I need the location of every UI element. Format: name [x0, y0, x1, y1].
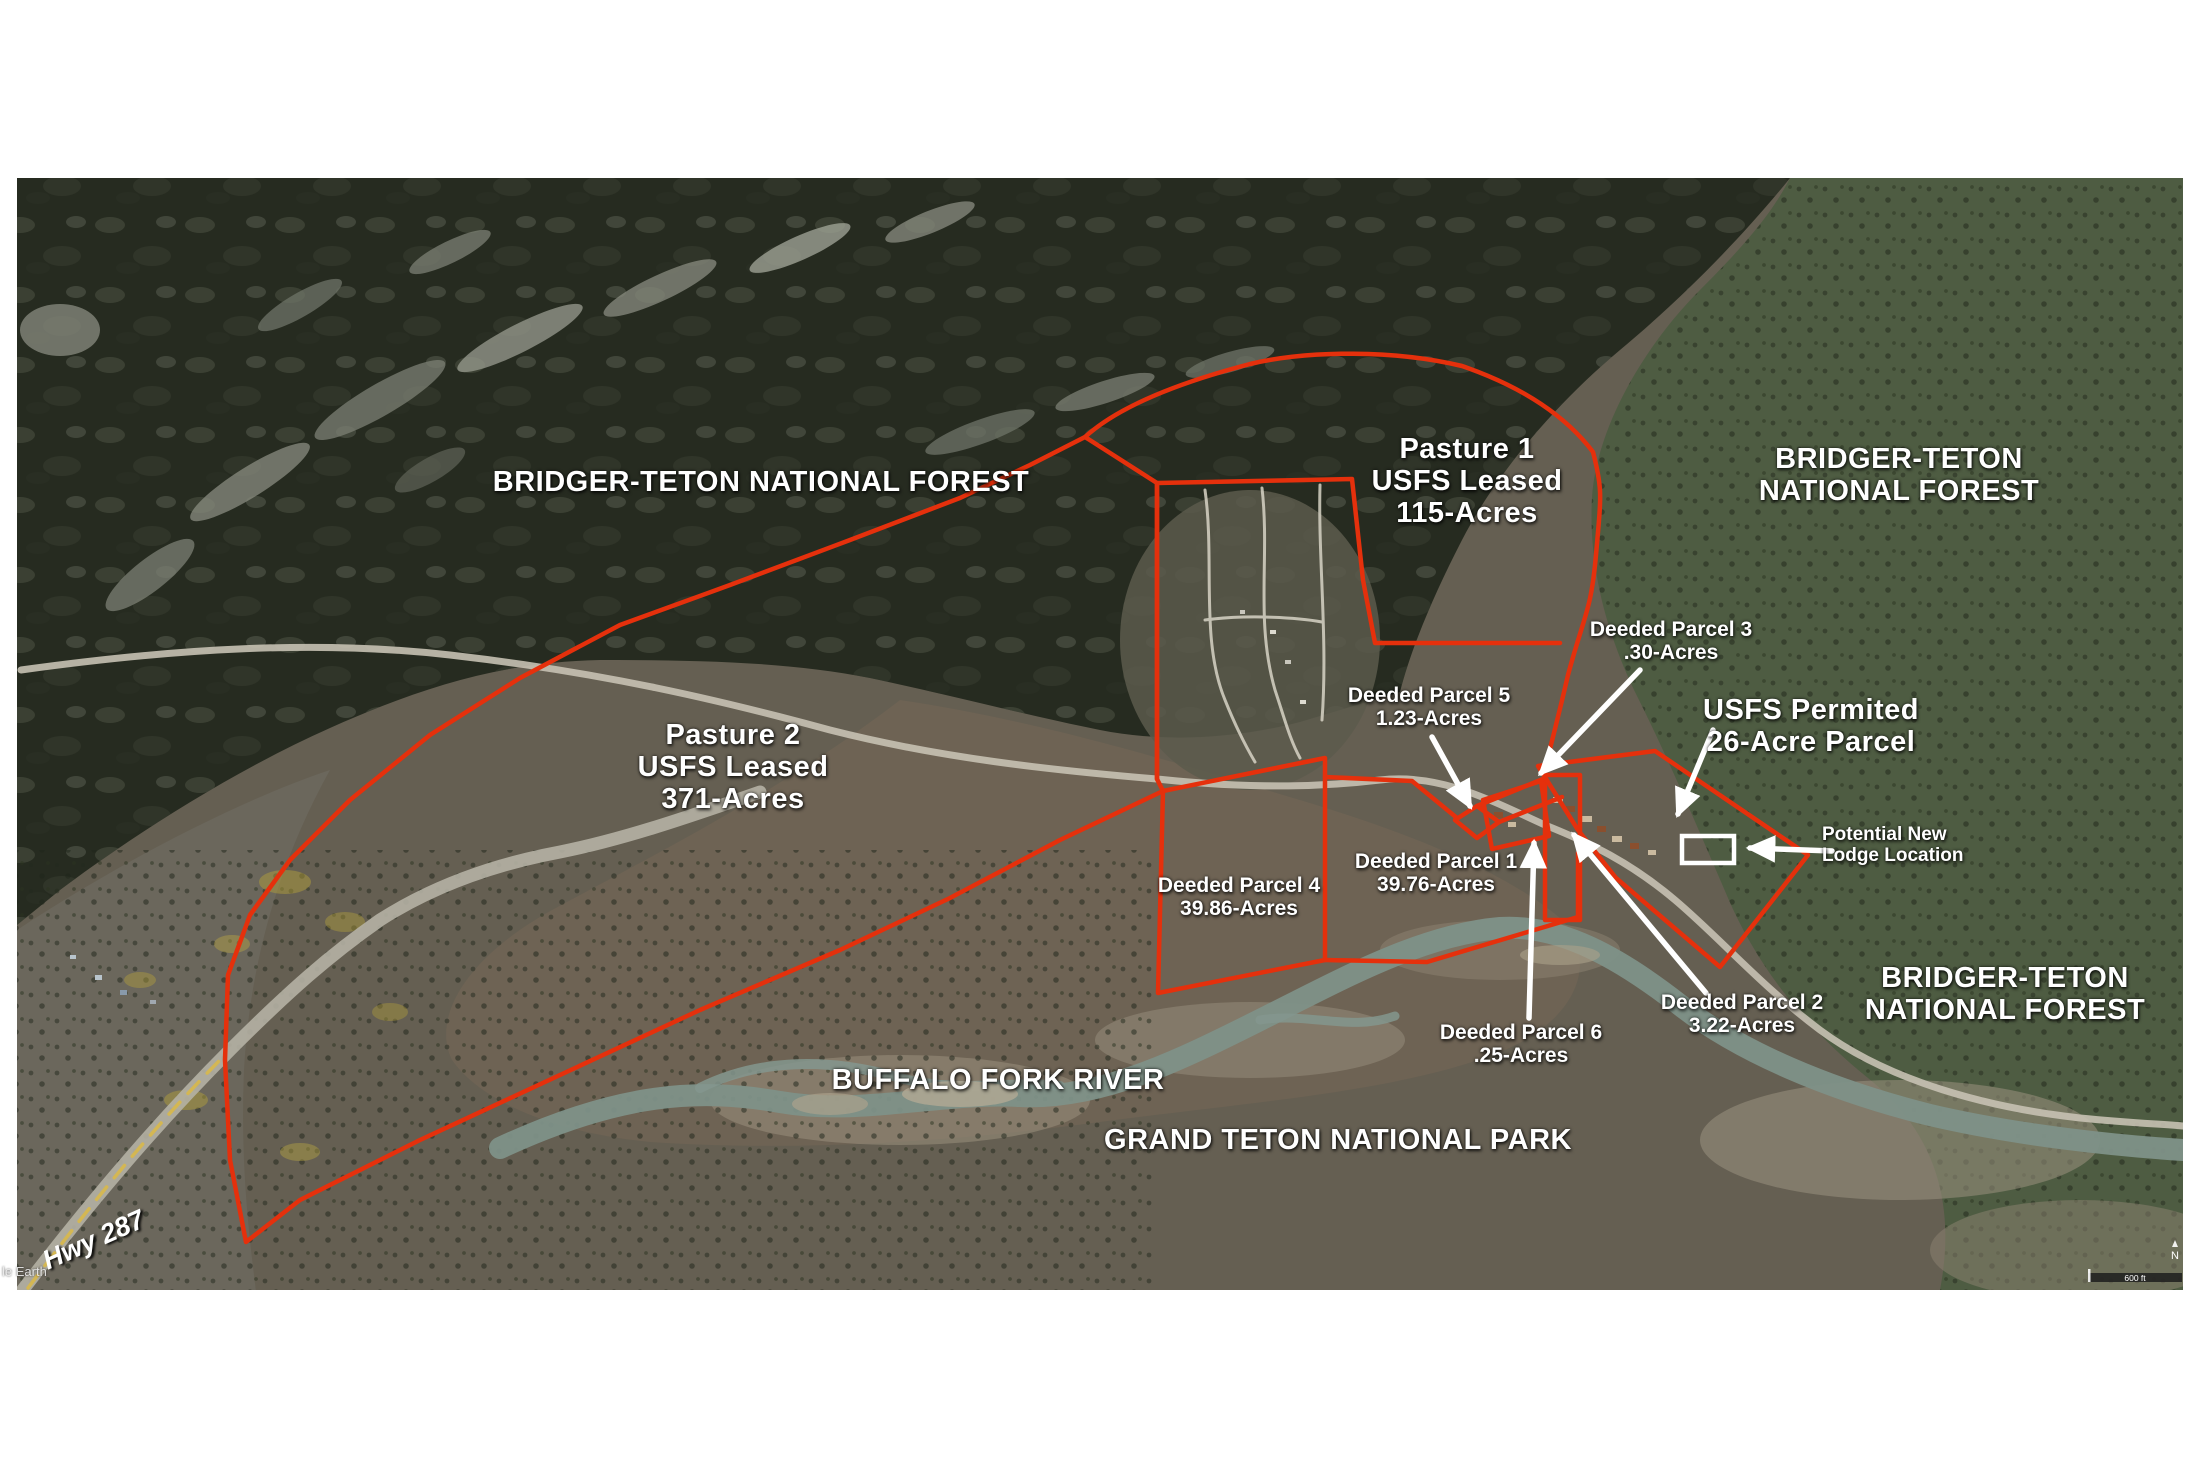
label-line: USFS Leased	[638, 751, 829, 783]
label-line: 371-Acres	[638, 783, 829, 815]
lodge-location-arrow	[1750, 848, 1832, 851]
label-line: GRAND TETON NATIONAL PARK	[1104, 1124, 1572, 1156]
label-line: Pasture 1	[1372, 433, 1563, 465]
label-line: Deeded Parcel 4	[1158, 874, 1320, 897]
label-line: USFS Permited	[1703, 694, 1919, 726]
label-deeded-parcel-6: Deeded Parcel 6 .25-Acres	[1440, 1021, 1602, 1067]
label-line: 115-Acres	[1372, 497, 1563, 529]
map-stage: 600 ft N BRIDGER-TETON NATIONAL FOREST P…	[0, 0, 2200, 1467]
label-line: Potential New	[1822, 824, 1963, 845]
label-line: USFS Leased	[1372, 465, 1563, 497]
label-usfs-permitted-parcel: USFS Permited 26-Acre Parcel	[1703, 694, 1919, 758]
label-line: Deeded Parcel 1	[1355, 850, 1517, 873]
label-line: 26-Acre Parcel	[1703, 726, 1919, 758]
label-deeded-parcel-1: Deeded Parcel 1 39.76-Acres	[1355, 850, 1517, 896]
label-line: BRIDGER-TETON	[1865, 962, 2145, 994]
label-line: 1.23-Acres	[1348, 707, 1510, 730]
label-line: Deeded Parcel 6	[1440, 1021, 1602, 1044]
label-forest-northwest: BRIDGER-TETON NATIONAL FOREST	[493, 466, 1030, 498]
north-label: N	[2171, 1250, 2179, 1262]
label-forest-northeast: BRIDGER-TETON NATIONAL FOREST	[1759, 443, 2039, 507]
label-line: BRIDGER-TETON NATIONAL FOREST	[493, 466, 1030, 498]
label-line: le Earth	[2, 1264, 47, 1279]
label-line: Deeded Parcel 2	[1661, 991, 1823, 1014]
label-line: 3.22-Acres	[1661, 1014, 1823, 1037]
label-line: 39.86-Acres	[1158, 897, 1320, 920]
label-line: Pasture 2	[638, 719, 829, 751]
label-line: .30-Acres	[1590, 641, 1752, 664]
label-line: Deeded Parcel 5	[1348, 684, 1510, 707]
label-buffalo-fork-river: BUFFALO FORK RIVER	[832, 1064, 1165, 1096]
scale-label: 600 ft	[2124, 1273, 2146, 1283]
label-forest-east: BRIDGER-TETON NATIONAL FOREST	[1865, 962, 2145, 1026]
label-line: NATIONAL FOREST	[1865, 994, 2145, 1026]
label-potential-lodge-location: Potential New Lodge Location	[1822, 824, 1963, 866]
label-line: 39.76-Acres	[1355, 873, 1517, 896]
label-deeded-parcel-4: Deeded Parcel 4 39.86-Acres	[1158, 874, 1320, 920]
label-deeded-parcel-5: Deeded Parcel 5 1.23-Acres	[1348, 684, 1510, 730]
earth-watermark: le Earth	[2, 1264, 47, 1279]
label-deeded-parcel-3: Deeded Parcel 3 .30-Acres	[1590, 618, 1752, 664]
label-line: NATIONAL FOREST	[1759, 475, 2039, 507]
label-grand-teton-national-park: GRAND TETON NATIONAL PARK	[1104, 1124, 1572, 1156]
label-line: Lodge Location	[1822, 845, 1963, 866]
label-pasture-1: Pasture 1 USFS Leased 115-Acres	[1372, 433, 1563, 529]
label-line: .25-Acres	[1440, 1044, 1602, 1067]
label-deeded-parcel-2: Deeded Parcel 2 3.22-Acres	[1661, 991, 1823, 1037]
label-line: BUFFALO FORK RIVER	[832, 1064, 1165, 1096]
label-line: Deeded Parcel 3	[1590, 618, 1752, 641]
label-pasture-2: Pasture 2 USFS Leased 371-Acres	[638, 719, 829, 815]
label-line: BRIDGER-TETON	[1759, 443, 2039, 475]
